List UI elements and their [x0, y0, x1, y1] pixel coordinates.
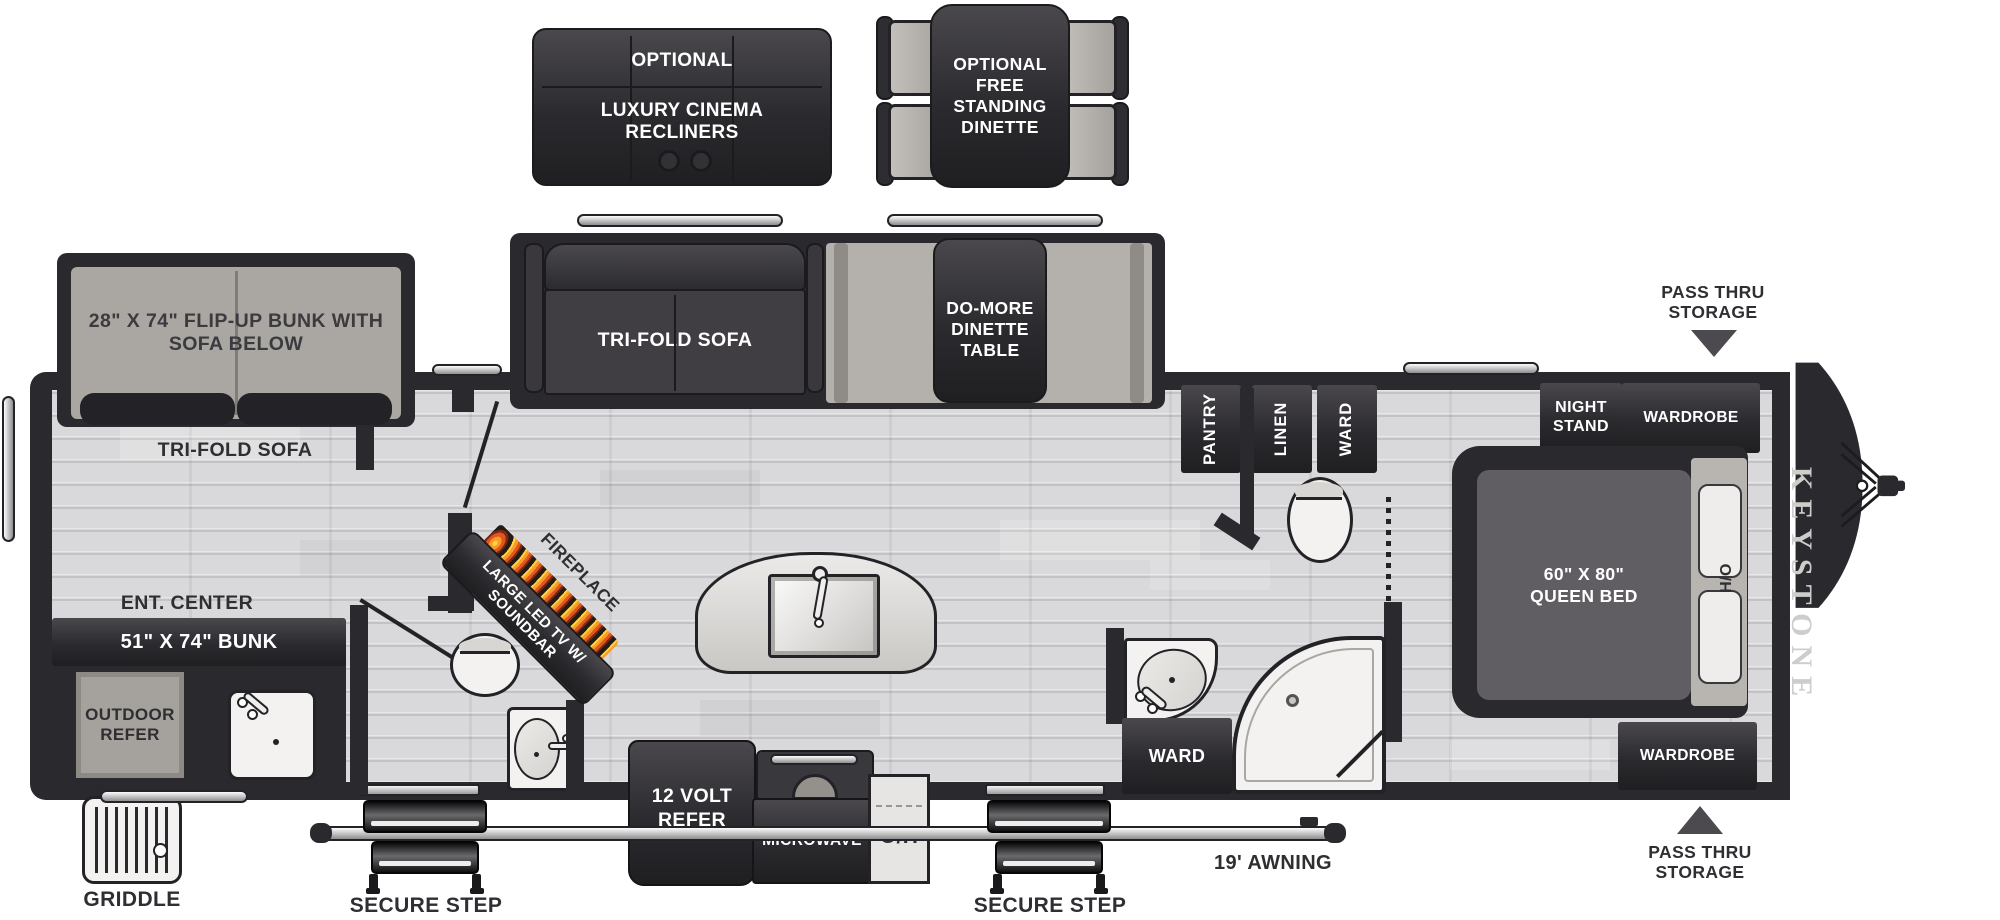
center-slide: TRI-FOLD SOFA DO-MORE DINETTE TABLE [510, 233, 1165, 409]
entry-door-sill-right [985, 784, 1105, 796]
shower-drain [1286, 694, 1299, 707]
sofa-below-cushion [80, 393, 235, 425]
toilet-seam [460, 651, 510, 654]
ent-center-label: ENT. CENTER [107, 592, 267, 615]
half-bath-toilet [450, 633, 520, 697]
ward-upper-label: WARD [1337, 387, 1357, 471]
vanity-wall-stub [1106, 628, 1124, 724]
dinette-bench-back [1130, 243, 1144, 403]
night-stand: NIGHT STAND [1540, 383, 1622, 451]
galley-door-jamb [452, 388, 474, 412]
queen-bed-label: 60" X 80" QUEEN BED [1514, 563, 1654, 607]
bedroom-window [1403, 362, 1539, 375]
hitch-jack-wheel [1857, 481, 1867, 491]
flip-up-bunk-label: 28" X 74" FLIP-UP BUNK WITH SOFA BELOW [81, 310, 391, 356]
slide-topper-dinette [887, 214, 1103, 227]
outdoor-sink [228, 690, 316, 780]
overhead-dash [876, 805, 922, 807]
night-stand-label: NIGHT STAND [1546, 398, 1616, 436]
step-slit [1003, 861, 1095, 866]
bath-drain [1169, 677, 1175, 683]
entry-door-sill-left [357, 784, 480, 796]
griddle [82, 796, 182, 884]
microwave: MICROWAVE [752, 798, 872, 884]
tv-corner-wall-elbow [428, 596, 474, 611]
awning-label: 19' AWNING [1198, 852, 1348, 875]
half-bath-drain [534, 752, 539, 757]
half-bath-wall-right [566, 700, 584, 796]
step-tread [995, 841, 1103, 874]
awning-end-cap [310, 823, 332, 843]
outdoor-refer-label: OUTDOOR REFER [84, 705, 176, 745]
ward-lower-label: WARD [1149, 746, 1206, 767]
hitch-coupler-tip [1896, 481, 1905, 491]
do-more-dinette-label: DO-MORE DINETTE TABLE [944, 298, 1036, 361]
pass-thru-top-label: PASS THRU STORAGE [1648, 282, 1778, 322]
recliner-cupholder [690, 150, 712, 172]
front-cap-hitch [1700, 350, 2000, 820]
slide-topper-sofa [577, 214, 783, 227]
tri-fold-sofa-rear-label: TRI-FOLD SOFA [145, 439, 325, 462]
flip-up-bunk-label-wrap: 28" X 74" FLIP-UP BUNK WITH SOFA BELOW [71, 267, 401, 399]
pantry-label: PANTRY [1201, 387, 1221, 471]
griddle-knob [153, 843, 168, 858]
pass-thru-bottom-label: PASS THRU STORAGE [1635, 842, 1765, 882]
step-slit [995, 821, 1103, 826]
secure-step-right-label: SECURE STEP [972, 894, 1128, 918]
keystone-logo: KEYSTONE [1782, 416, 1818, 756]
half-bath-sink [507, 707, 573, 791]
tri-fold-sofa-back [544, 243, 806, 291]
do-more-dinette-table: DO-MORE DINETTE TABLE [933, 238, 1047, 403]
secure-step-left-label: SECURE STEP [348, 894, 504, 918]
awning-end-cap [1324, 823, 1346, 843]
sofa-armrest [524, 243, 544, 393]
griddle-handle [100, 790, 248, 803]
step-slit [371, 821, 479, 826]
tri-fold-sofa-seat: TRI-FOLD SOFA [544, 289, 806, 395]
free-standing-dinette-label: OPTIONAL FREE STANDING DINETTE [944, 54, 1056, 138]
step-tread [371, 841, 479, 874]
refer-12v: 12 VOLT REFER [628, 740, 756, 886]
half-bath-wall-left [350, 605, 368, 795]
pass-thru-top-arrow [1691, 330, 1737, 357]
queen-bed-mattress: 60" X 80" QUEEN BED [1477, 470, 1691, 700]
pantry-cabinet: PANTRY [1181, 385, 1241, 473]
floorplan-canvas: 51" X 74" BUNK ENT. CENTER OUTDOOR REFER… [0, 0, 2000, 920]
secure-step-right [987, 798, 1111, 902]
step-slit [379, 861, 471, 866]
pocket-door-track [1386, 497, 1391, 603]
flip-up-bunk-slide: 28" X 74" FLIP-UP BUNK WITH SOFA BELOW [57, 253, 415, 427]
step-tread [987, 800, 1111, 833]
toilet-seam [1296, 497, 1342, 500]
outdoor-refer: OUTDOOR REFER [76, 672, 184, 778]
bath-wall-right [1384, 602, 1402, 742]
recliner-cupholder [658, 150, 680, 172]
step-tread [363, 800, 487, 833]
gri ddle-slats [95, 807, 169, 873]
griddle-label: GRIDDLE [52, 888, 212, 912]
optional-tag-label: OPTIONAL [534, 50, 830, 72]
bath-wall-stub [1240, 388, 1254, 534]
outdoor-sink-drain [273, 739, 279, 745]
sofa-below-cushion [237, 393, 392, 425]
outdoor-sink-faucet-dot [247, 709, 258, 720]
range-handle [770, 754, 858, 765]
sofa-seat-seam [674, 295, 676, 391]
optional-recliners: OPTIONAL LUXURY CINEMA RECLINERS [532, 28, 832, 186]
rear-wall-window [2, 396, 15, 542]
ward-upper-cabinet: WARD [1317, 385, 1377, 473]
top-wall-window [432, 364, 502, 376]
range-burner [792, 774, 838, 800]
free-standing-dinette-table: OPTIONAL FREE STANDING DINETTE [930, 4, 1070, 188]
ward-lower: WARD [1122, 718, 1232, 794]
bath-toilet [1287, 477, 1353, 563]
recliner-divider [542, 86, 822, 88]
secure-step-left [363, 798, 487, 902]
pass-thru-bottom-arrow [1677, 806, 1723, 834]
sofa-armrest [806, 243, 824, 393]
hitch-coupler [1878, 476, 1899, 497]
linen-label: LINEN [1272, 387, 1292, 471]
luxury-recliners-label: LUXURY CINEMA RECLINERS [572, 100, 792, 144]
bunk-51x74: 51" X 74" BUNK [52, 618, 346, 666]
refer-12v-label: 12 VOLT REFER [640, 784, 744, 832]
linen-cabinet: LINEN [1252, 385, 1312, 473]
awning-bracket [1300, 817, 1318, 826]
dinette-bench-back [834, 243, 848, 403]
range [756, 750, 874, 802]
island-faucet-dot [814, 618, 824, 628]
bunk-51x74-label: 51" X 74" BUNK [52, 618, 346, 666]
